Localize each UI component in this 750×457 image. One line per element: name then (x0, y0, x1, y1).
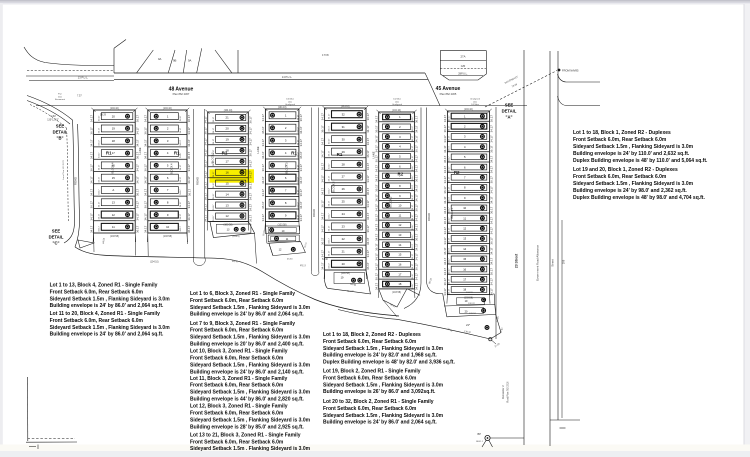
svg-text:34.17: 34.17 (329, 188, 331, 194)
svg-text:34.17: 34.17 (299, 214, 303, 222)
svg-text:45 Avenue: 45 Avenue (436, 86, 461, 92)
svg-text:15: 15 (398, 253, 401, 257)
svg-text:36.17: 36.17 (135, 115, 139, 123)
svg-text:34.17: 34.17 (448, 196, 450, 202)
svg-text:36.17: 36.17 (490, 206, 494, 214)
svg-text:16: 16 (398, 263, 401, 267)
svg-text:ROAD: ROAD (312, 209, 316, 217)
svg-text:34.17: 34.17 (203, 215, 207, 223)
svg-text:34.17: 34.17 (320, 175, 324, 183)
svg-text:(103.5): (103.5) (233, 236, 240, 238)
svg-text:Lot 10, Block 3, Zoned R1 - Si: Lot 10, Block 3, Zoned R1 - Single Famil… (190, 349, 288, 355)
svg-text:34.17: 34.17 (374, 283, 378, 291)
svg-text:Unaligned: Unaligned (470, 99, 481, 101)
svg-text:10: 10 (166, 225, 170, 229)
svg-text:34.17: 34.17 (320, 138, 324, 146)
svg-text:Street: Street (551, 259, 555, 267)
svg-text:"C": "C" (53, 241, 60, 246)
svg-text:Front Setback 6.0m, Rear Setba: Front Setback 6.0m, Rear Setback 6.0m (323, 339, 417, 345)
svg-text:34.17: 34.17 (98, 152, 100, 158)
svg-text:34.17: 34.17 (187, 164, 191, 172)
svg-text:34.17: 34.17 (89, 213, 93, 221)
svg-text:36.17: 36.17 (320, 200, 324, 208)
svg-text:34.17: 34.17 (375, 135, 379, 143)
svg-text:15: 15 (226, 181, 230, 185)
svg-text:DETAIL: DETAIL (502, 109, 517, 114)
svg-text:34.17: 34.17 (320, 150, 324, 158)
svg-text:34.17: 34.17 (490, 217, 494, 225)
svg-text:32: 32 (342, 112, 346, 116)
svg-text:36.17: 36.17 (144, 164, 148, 172)
svg-text:34.17: 34.17 (415, 214, 419, 222)
svg-text:36.17: 36.17 (490, 145, 494, 153)
svg-text:36.17: 36.17 (366, 187, 370, 195)
svg-text:36.17: 36.17 (415, 263, 419, 271)
svg-text:36.17: 36.17 (299, 151, 303, 159)
svg-text:48 Avenue: 48 Avenue (169, 87, 194, 93)
svg-text:34.17: 34.17 (213, 204, 215, 210)
svg-text:36.17: 36.17 (203, 127, 207, 135)
svg-text:28: 28 (342, 162, 346, 166)
svg-text:Front Setback 6.0m, Rear Setba: Front Setback 6.0m, Rear Setback 6.0m (573, 174, 667, 180)
svg-text:34.17: 34.17 (261, 139, 265, 147)
svg-text:34.17: 34.17 (249, 160, 253, 168)
svg-text:36.17: 36.17 (135, 188, 139, 196)
svg-text:34.17: 34.17 (448, 125, 450, 131)
svg-text:45.30: 45.30 (287, 259, 293, 261)
svg-text:34.17: 34.17 (329, 125, 331, 131)
svg-text:34.17: 34.17 (366, 237, 370, 245)
svg-text:34.17: 34.17 (135, 213, 139, 221)
svg-text:34.17: 34.17 (187, 139, 191, 147)
svg-text:34.17: 34.17 (443, 206, 447, 214)
svg-text:34.17: 34.17 (135, 164, 139, 172)
svg-text:Duplex Building envelope is 48: Duplex Building envelope is 48' by 110.0… (573, 158, 708, 164)
svg-text:34.17: 34.17 (366, 138, 370, 146)
svg-text:34.17: 34.17 (99, 213, 101, 219)
svg-text:34.17: 34.17 (448, 156, 450, 162)
svg-text:34.17: 34.17 (374, 115, 378, 123)
svg-text:34.17: 34.17 (443, 166, 447, 174)
svg-text:34.17: 34.17 (204, 116, 208, 124)
svg-text:34.17: 34.17 (329, 150, 331, 156)
svg-text:Front Setback 6.0m, Rear Setba: Front Setback 6.0m, Rear Setback 6.0m (190, 328, 284, 334)
svg-text:34.17: 34.17 (187, 201, 191, 209)
svg-text:34.17: 34.17 (375, 233, 379, 241)
svg-text:Sideyard Setback 1.5m , Flanki: Sideyard Setback 1.5m , Flanking Sideyar… (190, 305, 311, 311)
svg-text:36.17: 36.17 (490, 176, 494, 184)
svg-text:10: 10 (463, 206, 466, 210)
svg-text:34.17: 34.17 (375, 174, 379, 182)
svg-text:34.17: 34.17 (299, 176, 303, 184)
svg-text:34.17: 34.17 (415, 273, 419, 281)
svg-text:Front Setback 6.0m, Rear Setba: Front Setback 6.0m, Rear Setback 6.0m (190, 298, 284, 304)
svg-text:34.17: 34.17 (448, 207, 450, 213)
svg-text:34.17: 34.17 (135, 176, 139, 184)
svg-text:Lot 11, Block 3, Zoned R1 - Si: Lot 11, Block 3, Zoned R1 - Single Famil… (190, 376, 287, 382)
svg-text:36.17: 36.17 (415, 115, 419, 123)
svg-text:34.17: 34.17 (187, 176, 191, 184)
svg-text:ROAD: ROAD (427, 213, 431, 221)
svg-text:34.17: 34.17 (261, 176, 265, 184)
svg-text:134.80: 134.80 (466, 292, 473, 294)
svg-text:34.17: 34.17 (374, 145, 378, 153)
svg-text:"A": "A" (506, 115, 513, 120)
svg-text:Front Setback 6.0m, Rear Setba: Front Setback 6.0m, Rear Setback 6.0m (323, 375, 417, 381)
svg-text:34.17: 34.17 (490, 247, 494, 255)
svg-text:142 Ave: 142 Ave (393, 98, 402, 101)
svg-text:Building envelope is 44' by 86: Building envelope is 44' by 86.0' and 2,… (190, 397, 304, 403)
svg-text:36.17: 36.17 (261, 201, 265, 209)
svg-text:34.17: 34.17 (443, 135, 447, 143)
svg-text:17: 17 (398, 272, 401, 276)
svg-text:Front Setback 6.0m, Rear Setba: Front Setback 6.0m, Rear Setback 6.0m (190, 356, 284, 362)
svg-text:36.17: 36.17 (374, 214, 378, 222)
svg-text:34.17: 34.17 (448, 268, 450, 274)
svg-text:25: 25 (342, 200, 346, 204)
svg-text:34.17: 34.17 (366, 200, 370, 208)
svg-text:135°12'15": 135°12'15" (47, 119, 59, 122)
svg-text:36.17: 36.17 (261, 164, 265, 172)
svg-text:(103.58): (103.58) (163, 235, 172, 238)
svg-text:Dist: Dist (58, 95, 62, 98)
svg-text:Sideyard Setback 1.5m , Flanki: Sideyard Setback 1.5m , Flanking Sideyar… (190, 418, 311, 424)
svg-text:14 P.U.L.: 14 P.U.L. (282, 75, 293, 79)
svg-text:36.17: 36.17 (443, 278, 447, 286)
svg-text:Building envelope is 24' by 86: Building envelope is 24' by 86.0' and 2,… (50, 332, 164, 338)
svg-text:34.17: 34.17 (366, 212, 370, 220)
svg-text:Building envelope is 24' by 86: Building envelope is 24' by 86.0' and 2,… (323, 420, 437, 426)
svg-text:36.17: 36.17 (374, 125, 378, 133)
svg-text:36.17: 36.17 (248, 215, 252, 223)
svg-text:34.17: 34.17 (329, 225, 331, 231)
svg-text:17: 17 (112, 151, 116, 155)
svg-text:Lot 19, Block 2, Zoned R1 - Si: Lot 19, Block 2, Zoned R1 - Single Famil… (323, 369, 421, 375)
svg-text:Front Setback 6.0m, Rear Setba: Front Setback 6.0m, Rear Setback 6.0m (50, 289, 144, 295)
svg-text:34.17: 34.17 (89, 176, 93, 184)
svg-text:LANE: LANE (256, 146, 260, 153)
svg-text:Front Setback 6.0m, Rear Setba: Front Setback 6.0m, Rear Setback 6.0m (323, 406, 417, 412)
svg-text:36.17: 36.17 (443, 125, 447, 133)
svg-text:Sideyard Setback 1.5m , Flanki: Sideyard Setback 1.5m , Flanking Sideyar… (323, 413, 444, 419)
svg-text:Sideyard Setback 1.5m , Flanki: Sideyard Setback 1.5m , Flanking Sideyar… (323, 346, 444, 352)
svg-text:34.17: 34.17 (180, 213, 182, 219)
svg-text:Lot 11 to 20, Block 4, Zoned R: Lot 11 to 20, Block 4, Zoned R1 - Single… (50, 311, 161, 317)
svg-text:34.17: 34.17 (89, 152, 93, 160)
svg-text:(104.10): (104.10) (150, 262, 159, 264)
svg-text:36.17: 36.17 (299, 189, 303, 197)
svg-text:34.17: 34.17 (144, 188, 148, 196)
svg-text:SEE: SEE (505, 103, 514, 108)
svg-text:Sideyard Setback 1.5m , Flanki: Sideyard Setback 1.5m , Flanking Sideyar… (50, 325, 171, 331)
svg-text:26: 26 (342, 187, 346, 191)
svg-text:36.17: 36.17 (366, 262, 370, 270)
svg-text:Sideyard Setback 1.5m . Flanki: Sideyard Setback 1.5m . Flanking Sideyar… (190, 446, 311, 452)
svg-text:34.17: 34.17 (213, 116, 215, 122)
svg-text:36.17: 36.17 (490, 237, 494, 245)
svg-text:Plan 862 2305: Plan 862 2305 (440, 92, 457, 96)
svg-text:(104.10): (104.10) (464, 109, 473, 111)
svg-text:34.17: 34.17 (98, 226, 100, 232)
svg-text:34.17: 34.17 (415, 194, 419, 202)
svg-text:11: 11 (112, 225, 115, 229)
svg-text:Building envelope is 24' by 86: Building envelope is 24' by 86.0' and 2,… (190, 312, 304, 318)
svg-text:9B: 9B (173, 59, 177, 63)
svg-text:34.17: 34.17 (490, 278, 494, 286)
svg-text:34.17: 34.17 (448, 115, 450, 121)
svg-text:34.17: 34.17 (490, 227, 494, 235)
svg-text:12: 12 (463, 227, 466, 231)
svg-text:34.17: 34.17 (213, 171, 215, 177)
svg-text:34.17: 34.17 (213, 193, 215, 199)
svg-text:34.17: 34.17 (490, 186, 494, 194)
svg-text:ROAD: ROAD (195, 177, 199, 185)
svg-text:34.17: 34.17 (135, 139, 139, 147)
svg-text:36.17: 36.17 (261, 126, 265, 134)
svg-text:BP: BP (478, 432, 482, 436)
svg-text:Front Setback 6.0m, Rear Setba: Front Setback 6.0m, Rear Setback 6.0m (50, 318, 144, 324)
svg-text:(tie): (tie) (473, 100, 477, 103)
svg-text:34.17: 34.17 (299, 139, 303, 147)
svg-text:34.17: 34.17 (443, 237, 447, 245)
svg-text:(tie): (tie) (395, 100, 399, 103)
svg-text:34.17: 34.17 (366, 250, 370, 258)
svg-text:34.17: 34.17 (204, 138, 208, 146)
svg-text:12: 12 (398, 223, 401, 227)
svg-text:34.17: 34.17 (329, 213, 331, 219)
svg-text:34.17: 34.17 (329, 250, 331, 256)
svg-text:34.17: 34.17 (366, 175, 370, 183)
svg-text:34.17: 34.17 (213, 182, 215, 188)
svg-text:10: 10 (398, 204, 401, 208)
svg-text:34.17: 34.17 (448, 186, 450, 192)
svg-text:19: 19 (112, 127, 116, 131)
svg-text:36.17: 36.17 (248, 149, 252, 157)
svg-text:34.17: 34.17 (144, 176, 148, 184)
svg-text:34.17: 34.17 (213, 138, 215, 144)
svg-text:9A: 9A (188, 59, 192, 63)
svg-text:14: 14 (463, 247, 466, 251)
svg-text:34.17: 34.17 (448, 227, 450, 233)
svg-text:FROM NAV85: FROM NAV85 (562, 69, 579, 73)
svg-text:34.17: 34.17 (99, 189, 101, 195)
svg-text:34.17: 34.17 (443, 196, 447, 204)
svg-text:P.U.: P.U. (58, 94, 62, 96)
svg-text:36.17: 36.17 (249, 116, 253, 124)
svg-text:Easement: Easement (55, 98, 65, 101)
svg-text:29: 29 (342, 150, 346, 154)
svg-text:Building envelope is 24' by 11: Building envelope is 24' by 110.0' and 2… (573, 151, 690, 157)
svg-text:Building envelope is 24' by 98: Building envelope is 24' by 98.0' and 2,… (573, 188, 687, 194)
svg-text:34.17: 34.17 (213, 160, 215, 166)
svg-text:36.17: 36.17 (490, 268, 494, 276)
svg-text:34.17: 34.17 (329, 163, 331, 169)
svg-text:34.17: 34.17 (374, 224, 378, 232)
svg-text:34.17: 34.17 (490, 125, 494, 133)
svg-text:34.17: 34.17 (213, 127, 215, 133)
svg-text:Building envelope is 28' by 85: Building envelope is 28' by 85.0' and 2,… (190, 424, 304, 430)
svg-text:15: 15 (112, 176, 116, 180)
svg-text:34.17: 34.17 (187, 213, 191, 221)
svg-text:34.17: 34.17 (203, 171, 207, 179)
svg-text:17: 17 (226, 160, 230, 164)
svg-text:(104.10): (104.10) (341, 106, 350, 108)
svg-text:34.17: 34.17 (443, 227, 447, 235)
svg-text:(104.10): (104.10) (110, 108, 119, 110)
svg-text:18: 18 (112, 139, 116, 143)
svg-text:36.17: 36.17 (366, 150, 370, 158)
svg-text:34.17: 34.17 (180, 201, 182, 207)
svg-text:21: 21 (342, 250, 346, 254)
svg-text:34.17: 34.17 (180, 127, 182, 133)
svg-text:Building envelope is 24' by 86: Building envelope is 24' by 86.0' and 2,… (190, 369, 304, 375)
svg-text:24: 24 (342, 212, 346, 216)
svg-text:Road Plan 762 2316: Road Plan 762 2316 (508, 381, 510, 403)
svg-text:34.17: 34.17 (415, 184, 419, 192)
svg-text:20: 20 (226, 127, 230, 131)
svg-text:34.17: 34.17 (320, 113, 324, 121)
svg-text:DETAIL: DETAIL (53, 130, 68, 135)
svg-text:36.17: 36.17 (366, 225, 370, 233)
svg-text:Sideyard Setback 1.5m , Flanki: Sideyard Setback 1.5m , Flanking Sideyar… (573, 144, 694, 150)
svg-text:36.17: 36.17 (366, 113, 370, 121)
svg-text:34.17: 34.17 (213, 149, 215, 155)
svg-text:34.17: 34.17 (248, 127, 252, 135)
svg-text:Lot 13 to 21, Block 3, Zoned R: Lot 13 to 21, Block 3, Zoned R1 - Single… (190, 432, 301, 438)
svg-text:Lot 19 and 20, Block 1, Zoned: Lot 19 and 20, Block 1, Zoned R2 - Duple… (573, 167, 678, 173)
svg-text:12: 12 (112, 213, 116, 217)
svg-text:34.17: 34.17 (415, 283, 419, 291)
svg-text:34.17: 34.17 (415, 135, 419, 143)
svg-text:21: 21 (226, 116, 230, 120)
svg-text:(104.10): (104.10) (278, 107, 287, 109)
svg-text:34.17: 34.17 (89, 139, 93, 147)
svg-text:36.17: 36.17 (320, 125, 324, 133)
svg-text:34.17: 34.17 (320, 250, 324, 258)
svg-text:SEE: SEE (52, 229, 61, 234)
svg-text:28P.U.L.: 28P.U.L. (458, 73, 468, 76)
svg-text:34.17: 34.17 (320, 225, 324, 233)
svg-text:Duplex Building envelope is 48: Duplex Building envelope is 48' by 82.0'… (323, 360, 455, 366)
svg-text:Government Road Allowance: Government Road Allowance (536, 244, 540, 281)
svg-text:34.17: 34.17 (329, 175, 331, 181)
svg-text:36.17: 36.17 (299, 114, 303, 122)
svg-text:34.17: 34.17 (443, 257, 447, 265)
svg-text:142 Ave: 142 Ave (471, 103, 480, 106)
svg-text:36.17: 36.17 (135, 152, 139, 160)
svg-text:14: 14 (398, 243, 401, 247)
svg-text:34.17: 34.17 (187, 127, 191, 135)
svg-text:13: 13 (112, 201, 116, 205)
svg-text:Lot 12, Block 3, Zoned R1 - Si: Lot 12, Block 3, Zoned R1 - Single Famil… (190, 404, 288, 410)
svg-text:34.17: 34.17 (299, 201, 303, 209)
svg-text:36.17: 36.17 (89, 164, 93, 172)
svg-text:34.17: 34.17 (213, 215, 215, 221)
svg-text:34.17: 34.17 (448, 237, 450, 243)
svg-text:34.17: 34.17 (490, 257, 494, 265)
svg-text:34.17: 34.17 (448, 135, 450, 141)
svg-text:34.17: 34.17 (448, 176, 450, 182)
svg-text:36.17: 36.17 (415, 204, 419, 212)
svg-text:36.17: 36.17 (89, 201, 93, 209)
svg-text:C/R: C/R (461, 64, 466, 68)
svg-text:Lot 7 to 9, Block 3, Zoned R1: Lot 7 to 9, Block 3, Zoned R1 - Single F… (190, 321, 295, 327)
svg-text:36.17: 36.17 (443, 155, 447, 163)
svg-text:34.17: 34.17 (299, 164, 303, 172)
svg-text:36.17: 36.17 (203, 193, 207, 201)
svg-text:Building envelope is 24' by 82: Building envelope is 24' by 82.0' and 1,… (323, 353, 437, 359)
svg-text:34.17: 34.17 (448, 166, 450, 172)
svg-text:36.17: 36.17 (415, 145, 419, 153)
svg-text:SEE: SEE (56, 124, 65, 129)
svg-text:34.17: 34.17 (329, 113, 331, 119)
svg-text:34.17: 34.17 (448, 288, 450, 294)
svg-text:34.17: 34.17 (203, 149, 207, 157)
svg-text:34.17: 34.17 (366, 163, 370, 171)
svg-text:36.17: 36.17 (204, 160, 208, 168)
svg-text:34.17: 34.17 (135, 201, 139, 209)
svg-text:"B": "B" (57, 136, 64, 141)
svg-text:34.17: 34.17 (329, 138, 331, 144)
svg-text:17V8: 17V8 (322, 53, 329, 57)
svg-text:34.17: 34.17 (415, 224, 419, 232)
svg-text:34.17: 34.17 (261, 214, 265, 222)
svg-text:34.17: 34.17 (320, 212, 324, 220)
svg-text:36.17: 36.17 (144, 201, 148, 209)
svg-text:36.17: 36.17 (374, 155, 378, 163)
svg-text:34.17: 34.17 (98, 127, 100, 133)
svg-text:34.17: 34.17 (135, 127, 139, 135)
svg-text:Lot 1 to 6, Block 3, Zoned R1: Lot 1 to 6, Block 3, Zoned R1 - Single F… (190, 291, 295, 297)
svg-text:15: 15 (463, 257, 466, 261)
svg-text:Unaligned: Unaligned (285, 104, 296, 106)
svg-text:ROAD: ROAD (73, 177, 77, 185)
svg-text:34.17: 34.17 (375, 263, 379, 271)
svg-text:DETAIL: DETAIL (49, 235, 64, 240)
svg-text:Sideyard Setback 1.5m , Flanki: Sideyard Setback 1.5m , Flanking Sideyar… (573, 181, 694, 187)
svg-text:Lot 1 to 13, Block 4, Zoned R1: Lot 1 to 13, Block 4, Zoned R1 - Single … (50, 283, 158, 289)
svg-text:36.17: 36.17 (443, 247, 447, 255)
svg-text:34.17: 34.17 (490, 166, 494, 174)
svg-text:34.17: 34.17 (329, 262, 331, 268)
svg-text:34.17: 34.17 (249, 138, 253, 146)
svg-text:36.17: 36.17 (415, 174, 419, 182)
svg-text:34.17: 34.17 (98, 176, 100, 182)
svg-text:34.17: 34.17 (249, 204, 253, 212)
svg-text:34.17: 34.17 (144, 213, 148, 221)
svg-text:34.17: 34.17 (448, 258, 450, 264)
svg-text:34.17: 34.17 (443, 115, 447, 123)
svg-text:34.17: 34.17 (144, 152, 148, 160)
svg-text:Sideyard Setback 1.5m , Flanki: Sideyard Setback 1.5m , Flanking Sideyar… (190, 335, 311, 341)
svg-text:36.17: 36.17 (187, 152, 191, 160)
svg-text:18: 18 (398, 282, 401, 286)
svg-text:Duplex Building envelope is 48: Duplex Building envelope is 48' by 98.0'… (573, 195, 705, 201)
svg-text:Remainder of: Remainder of (502, 385, 505, 399)
svg-text:34.17: 34.17 (490, 135, 494, 143)
svg-text:(103.58): (103.58) (110, 235, 119, 238)
svg-text:Sideyard Setback 1.5m , Flanki: Sideyard Setback 1.5m , Flanking Sideyar… (50, 296, 171, 302)
svg-text:18: 18 (226, 149, 230, 153)
svg-text:36.17: 36.17 (89, 127, 93, 135)
svg-text:13: 13 (463, 237, 466, 241)
svg-text:34.17: 34.17 (329, 200, 331, 206)
svg-text:R1: R1 (291, 151, 297, 156)
svg-text:36.17: 36.17 (320, 163, 324, 171)
svg-text:36.17: 36.17 (415, 233, 419, 241)
svg-text:133.53: 133.53 (469, 313, 476, 315)
svg-text:34.17: 34.17 (415, 243, 419, 251)
